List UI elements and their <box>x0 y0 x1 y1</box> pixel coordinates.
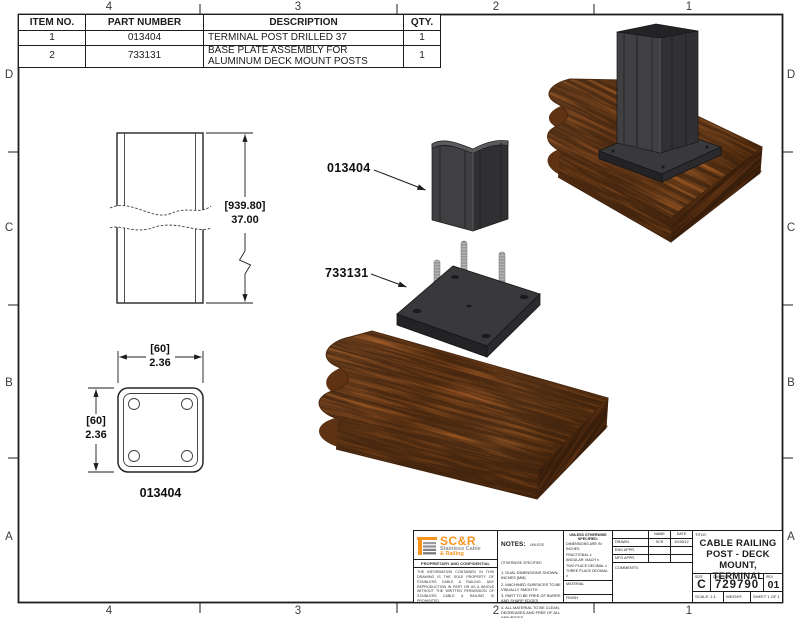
tolerance-line: DIMENSIONS ARE IN INCHES <box>566 542 610 553</box>
zone-bottom-3: 3 <box>295 605 301 617</box>
table-row: 1 013404 TERMINAL POST DRILLED 37 1 <box>19 31 441 46</box>
dimension-metric: [60] <box>66 414 126 428</box>
zone-right-c: C <box>787 222 795 234</box>
approval-date: 10/26/12 <box>671 539 692 546</box>
zone-right-b: B <box>787 377 795 389</box>
zone-top-1: 1 <box>686 1 692 13</box>
section-width-dimension: [60] 2.36 <box>130 342 190 371</box>
zone-top-3: 3 <box>295 1 301 13</box>
proprietary-text: THE INFORMATION CONTAINED IN THIS DRAWIN… <box>414 568 497 606</box>
post-length-dimension: [939.80] 37.00 <box>205 199 285 228</box>
rev-value: 01 <box>764 579 783 591</box>
drawing-canvas <box>0 0 800 618</box>
table-row: 2 733131 BASE PLATE ASSEMBLY FOR ALUMINU… <box>19 46 441 68</box>
title-block-tolerance-cell: UNLESS OTHERWISE SPECIFIED: DIMENSIONS A… <box>564 531 613 602</box>
tolerance-line: THREE PLACE DECIMAL ± <box>566 569 610 580</box>
sheet-value: SHEET 1 OF 1 <box>750 592 783 602</box>
weight-value: WEIGHT: <box>723 592 750 602</box>
zone-top-2: 2 <box>493 1 499 13</box>
tolerance-lines: DIMENSIONS ARE IN INCHES FRACTIONAL ± AN… <box>564 542 612 580</box>
zone-right-d: D <box>787 69 795 81</box>
dimension-inch: 2.36 <box>66 428 126 442</box>
scale-row: SCALE: 1:1 WEIGHT: SHEET 1 OF 1 <box>693 591 783 602</box>
approval-label: MFG APPR. <box>613 555 649 562</box>
bom-qty: 1 <box>404 31 441 46</box>
assembled-post <box>617 24 698 153</box>
dwg-no-cell: DWG. NO. 729790 <box>711 574 764 591</box>
exploded-post <box>432 140 508 231</box>
section-caption: 013404 <box>118 486 203 500</box>
approval-label: DRAWN <box>613 539 649 546</box>
notes-heading: NOTES: <box>501 541 526 548</box>
bom-desc: TERMINAL POST DRILLED 37 <box>204 31 404 46</box>
note-item: 4. ALL MATERIAL TO BE CLEAN, DEGREASED A… <box>501 605 561 618</box>
approval-row-drawn: DRAWN SCR 10/26/12 <box>613 539 692 547</box>
size-cell: SIZE C <box>693 574 711 591</box>
bom-part: 013404 <box>86 31 204 46</box>
drawing-sheet: 4 3 2 1 4 3 2 1 D C B A D C B A ITEM NO.… <box>0 0 800 618</box>
assembled-view <box>488 0 800 310</box>
approval-row-eng: ENG APPR. <box>613 547 692 555</box>
section-height-dimension: [60] 2.36 <box>66 414 126 443</box>
drawing-id-row: SIZE C DWG. NO. 729790 REV 01 <box>693 573 783 591</box>
dimension-metric: [939.80] <box>205 199 285 213</box>
note-item: 2. MACHINED SURFACES TO BE VISUALLY SMOO… <box>501 582 561 593</box>
date-header: DATE <box>671 531 692 538</box>
title-block-approvals-cell: NAME DATE DRAWN SCR 10/26/12 ENG APPR. M… <box>613 531 693 602</box>
zone-top-4: 4 <box>106 1 112 13</box>
dimension-metric: [60] <box>130 342 190 356</box>
title-block-title-cell: TITLE: CABLE RAILING POST - DECK MOUNT, … <box>693 531 783 602</box>
brand-name: SC&R <box>440 535 481 547</box>
dimension-inch: 2.36 <box>130 356 190 370</box>
leader-post <box>374 170 426 190</box>
drawing-title-line: POST - DECK <box>693 549 783 560</box>
zone-left-d: D <box>5 69 13 81</box>
approvals-header-row: NAME DATE <box>613 531 692 539</box>
zone-left-a: A <box>5 531 13 543</box>
bom-header-desc: DESCRIPTION <box>204 15 404 31</box>
dimension-inch: 37.00 <box>205 213 285 227</box>
company-logo: SC&R Stainless Cable & Railing <box>414 531 497 559</box>
name-header: NAME <box>649 531 671 538</box>
finish-label: FINISH <box>564 594 612 608</box>
leader-plate <box>371 274 407 287</box>
plate-balloon-label: 733131 <box>325 266 369 280</box>
post-balloon-label: 013404 <box>327 161 371 175</box>
approval-label: ENG APPR. <box>613 547 649 554</box>
approval-name: SCR <box>649 539 671 546</box>
proprietary-heading: PROPRIETARY AND CONFIDENTIAL <box>414 559 497 568</box>
bom-item: 2 <box>19 46 86 68</box>
bom-item: 1 <box>19 31 86 46</box>
zone-bottom-1: 1 <box>686 605 692 617</box>
brand-tagline-2: & Railing <box>440 552 481 558</box>
title-block-logo-cell: SC&R Stainless Cable & Railing PROPRIETA… <box>414 531 498 602</box>
bom-header-part: PART NUMBER <box>86 15 204 31</box>
material-label: MATERIAL <box>564 580 612 594</box>
dwg-no-value: 729790 <box>711 579 763 591</box>
zone-left-c: C <box>5 222 13 234</box>
zone-bottom-4: 4 <box>106 605 112 617</box>
drawing-title-line: CABLE RAILING <box>693 538 783 549</box>
notes-list: 1. DUAL DIMENSIONS SHOWN: INCHES [MM] 2.… <box>498 569 563 618</box>
note-item: 1. DUAL DIMENSIONS SHOWN: INCHES [MM] <box>501 570 561 581</box>
title-block-notes-cell: NOTES: UNLESS OTHERWISE SPECIFIED 1. DUA… <box>498 531 564 602</box>
bom-header-item: ITEM NO. <box>19 15 86 31</box>
zone-right-a: A <box>787 531 795 543</box>
railing-logo-icon <box>417 537 437 555</box>
size-value: C <box>693 579 710 589</box>
bom-header-row: ITEM NO. PART NUMBER DESCRIPTION QTY. <box>19 15 441 31</box>
scale-value: SCALE: 1:1 <box>693 592 723 602</box>
bom-table: ITEM NO. PART NUMBER DESCRIPTION QTY. 1 … <box>18 14 441 68</box>
tolerance-heading: UNLESS OTHERWISE SPECIFIED: <box>564 531 612 542</box>
title-label: TITLE: <box>693 531 783 537</box>
comments-label: COMMENTS: <box>613 563 692 570</box>
bom-desc: BASE PLATE ASSEMBLY FOR ALUMINUM DECK MO… <box>204 46 404 68</box>
exploded-base-plate <box>397 266 540 357</box>
rev-cell: REV 01 <box>764 574 783 591</box>
bom-header-qty: QTY. <box>404 15 441 31</box>
zone-left-b: B <box>5 377 13 389</box>
approval-row-mfg: MFG APPR. <box>613 555 692 563</box>
bom-part: 733131 <box>86 46 204 68</box>
note-item: 3. PART TO BE FREE OF BURRS AND SHARP ED… <box>501 593 561 604</box>
title-block: SC&R Stainless Cable & Railing PROPRIETA… <box>413 530 783 603</box>
bom-qty: 1 <box>404 46 441 68</box>
